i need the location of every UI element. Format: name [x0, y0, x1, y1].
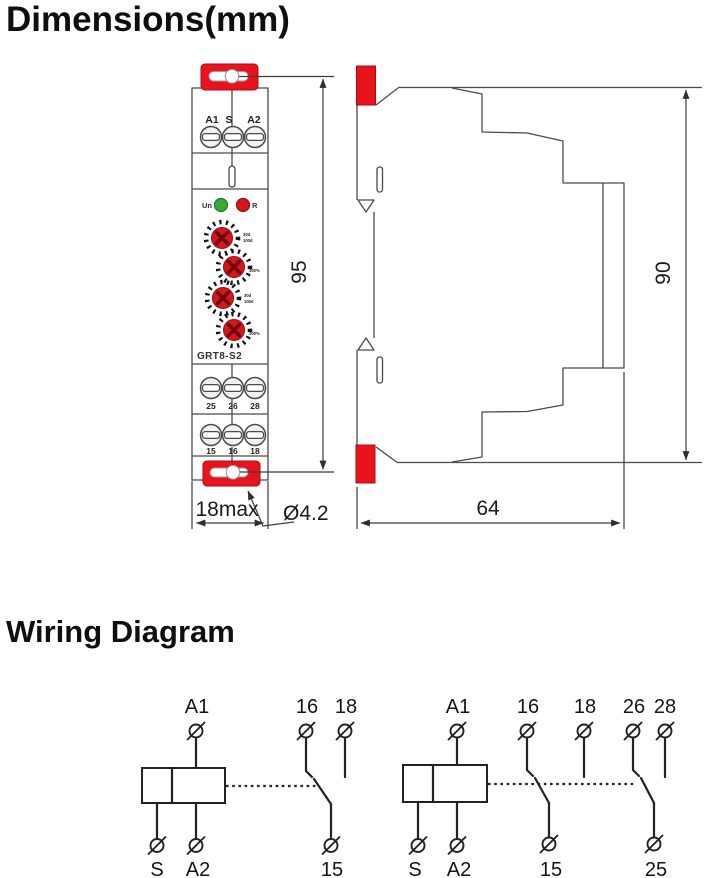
dim-90-label: 90	[652, 261, 675, 284]
led-label-r: R	[252, 201, 258, 210]
wiring-terminal-a1	[448, 722, 466, 740]
dial2-scale-label: 100%	[249, 268, 260, 273]
wiring-terminal-s	[148, 837, 166, 855]
dial3-scale-label: 30d	[244, 293, 252, 298]
wiring-terminal-25	[645, 835, 663, 853]
terminal-label-a2: A2	[247, 114, 261, 126]
wiring-label-a1: A1	[185, 696, 209, 718]
switch-arm-pole2	[641, 778, 654, 803]
dial1-scale-label: 30d	[243, 232, 251, 237]
coil-box	[403, 765, 487, 802]
side-top-tab	[357, 66, 376, 105]
terminal-label-26: 26	[228, 401, 238, 411]
side-bottom-tab	[356, 445, 375, 483]
technical-drawing: A1 S A2 Un R 30d 100d 100% 30d 100d	[0, 0, 708, 878]
bottom-mounting-tab	[203, 461, 260, 486]
screw-terminal	[245, 378, 266, 399]
wiring-label-s: S	[408, 859, 421, 878]
dial1-scale-label2: 100d	[243, 238, 253, 243]
terminal-label-18: 18	[250, 446, 260, 456]
wiring-schematic-spdt: A1 S A2 16 18 15	[142, 696, 357, 878]
wiring-schematic-dpdt: A1 S A2 16 18 26 28 15	[403, 696, 676, 878]
hole-diameter-label: Ø4.2	[283, 502, 329, 525]
wiring-label-15: 15	[540, 859, 562, 878]
switch-arm	[314, 779, 331, 804]
din-clip-top	[358, 200, 374, 212]
wiring-terminal-a2	[187, 837, 205, 855]
wiring-label-16: 16	[517, 696, 539, 718]
terminal-label-15: 15	[206, 446, 216, 456]
wire-16	[527, 739, 533, 777]
terminal-label-25: 25	[206, 401, 216, 411]
coil-box	[142, 768, 225, 803]
terminal-label-a1: A1	[205, 114, 219, 126]
wiring-terminal-s	[409, 837, 427, 855]
side-slot-top	[377, 167, 383, 192]
wiring-label-s: S	[150, 859, 163, 878]
side-back-profile	[452, 183, 624, 462]
wiring-terminal-a2	[448, 837, 466, 855]
wiring-label-16: 16	[296, 696, 318, 718]
side-view	[356, 66, 702, 483]
side-top-slope	[376, 88, 398, 105]
screw-terminal	[223, 378, 244, 399]
screw-terminal	[201, 378, 222, 399]
wiring-terminal-26	[624, 722, 642, 740]
switch-arm-pole1	[535, 778, 549, 803]
wiring-label-18: 18	[335, 696, 357, 718]
side-front-edge	[357, 105, 374, 445]
screw-terminal	[223, 425, 244, 446]
dial3-scale-label2: 100d	[244, 299, 254, 304]
screw-terminal	[201, 425, 222, 446]
wiring-label-26: 26	[623, 696, 645, 718]
front-view: A1 S A2 Un R 30d 100d 100% 30d 100d	[192, 64, 268, 486]
dim-18max-label: 18max	[195, 498, 259, 521]
screw-terminal	[245, 425, 266, 446]
wiring-terminal-15	[322, 837, 340, 855]
product-spec-sheet: Dimensions(mm) Wiring Diagram	[0, 0, 708, 878]
screw-terminal	[201, 127, 222, 148]
wiring-label-28: 28	[654, 696, 676, 718]
wiring-terminal-28	[656, 722, 674, 740]
terminal-label-16: 16	[228, 446, 238, 456]
wire-16	[306, 739, 312, 778]
wire-26	[633, 739, 639, 777]
dim-64-label: 64	[476, 497, 500, 520]
screw-terminal	[245, 127, 266, 148]
wiring-terminal-a1	[187, 722, 205, 740]
side-top-step	[452, 88, 563, 183]
wiring-terminal-15	[540, 835, 558, 853]
led-label-un: Un	[202, 201, 212, 210]
terminal-label-s: S	[225, 114, 232, 126]
wiring-terminal-16	[297, 722, 315, 740]
wiring-label-15: 15	[321, 859, 343, 878]
wiring-label-a2: A2	[447, 859, 471, 878]
terminal-label-28: 28	[250, 401, 260, 411]
din-clip-bottom	[358, 338, 374, 350]
side-bottom-slope	[376, 447, 398, 463]
dial4-scale-label: 100%	[249, 331, 260, 336]
dim-95-label: 95	[288, 260, 311, 283]
relay-led	[237, 199, 250, 212]
power-led	[215, 199, 228, 212]
wiring-terminal-18	[336, 722, 354, 740]
wiring-terminal-18	[575, 722, 593, 740]
screw-terminal	[223, 127, 244, 148]
wiring-label-18: 18	[574, 696, 596, 718]
wiring-label-25: 25	[645, 859, 667, 878]
wiring-terminal-16	[518, 722, 536, 740]
mounting-hole	[225, 70, 239, 84]
side-slot-bottom	[377, 357, 383, 383]
front-slot	[229, 166, 235, 187]
wiring-label-a1: A1	[446, 696, 470, 718]
mounting-hole	[226, 466, 240, 480]
model-label: GRT8-S2	[197, 351, 242, 362]
wiring-label-a2: A2	[186, 859, 210, 878]
